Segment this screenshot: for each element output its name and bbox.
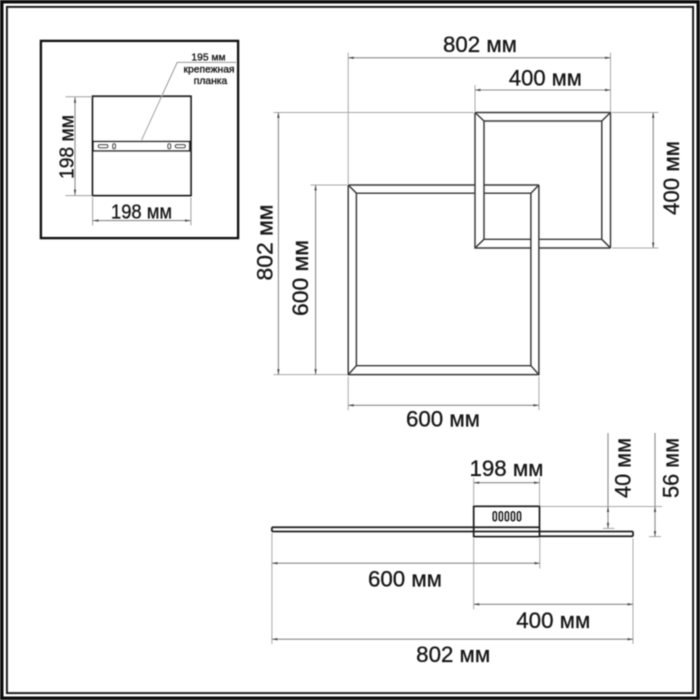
svg-text:40 мм: 40 мм — [611, 438, 636, 498]
svg-text:600 мм: 600 мм — [288, 240, 313, 316]
svg-text:400 мм: 400 мм — [516, 608, 590, 633]
svg-text:400 мм: 400 мм — [659, 141, 684, 215]
svg-text:802 мм: 802 мм — [443, 32, 517, 57]
svg-text:802 мм: 802 мм — [253, 205, 278, 281]
svg-text:195 мм: 195 мм — [191, 53, 225, 64]
svg-text:802 мм: 802 мм — [416, 642, 490, 667]
svg-text:600 мм: 600 мм — [406, 406, 480, 431]
svg-text:крепежная: крепежная — [183, 65, 234, 76]
svg-text:198 мм: 198 мм — [111, 201, 172, 223]
svg-text:400 мм: 400 мм — [509, 65, 582, 90]
svg-text:198 мм: 198 мм — [57, 115, 79, 179]
svg-text:планка: планка — [194, 76, 228, 87]
svg-text:198 мм: 198 мм — [470, 456, 544, 481]
svg-text:56 мм: 56 мм — [659, 438, 684, 498]
svg-text:600 мм: 600 мм — [368, 567, 442, 592]
